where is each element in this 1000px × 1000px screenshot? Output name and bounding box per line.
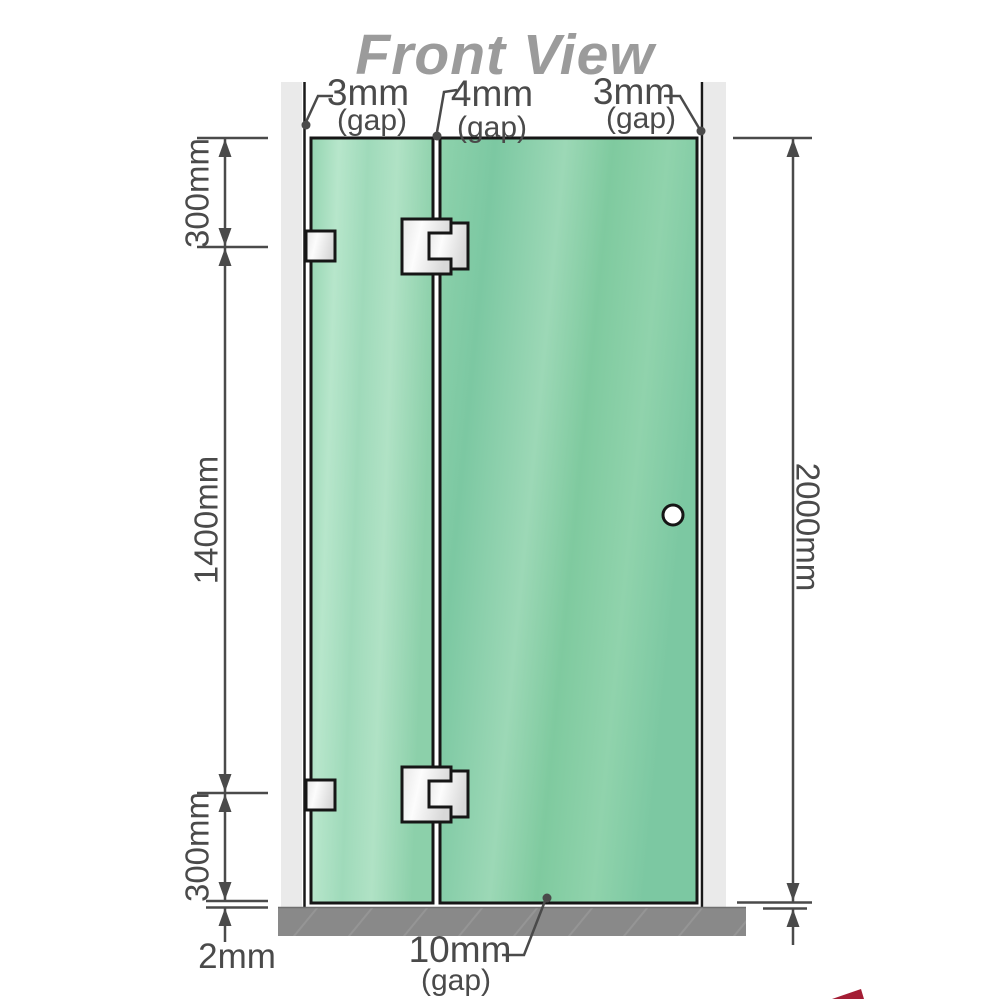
gap-middle-value: 4mm	[451, 73, 533, 114]
gap-callout-right: 3mm (gap)	[593, 71, 706, 136]
dim-2000-label: 2000mm	[790, 463, 827, 591]
gap-callout-left: 3mm (gap)	[302, 72, 410, 137]
leader-dot-bottom-gap	[543, 894, 552, 903]
leader-dot-middle-gap	[433, 132, 442, 141]
front-view-diagram: Front View	[0, 0, 1000, 1000]
dim-2mm-label: 2mm	[198, 937, 276, 976]
right-wall-channel	[704, 82, 726, 907]
gap-middle-label: (gap)	[457, 111, 527, 144]
door-glass-panel	[440, 138, 697, 903]
hinge-bottom	[402, 767, 468, 822]
gap-bottom-label: (gap)	[421, 964, 491, 997]
diagram-canvas: Front View	[0, 0, 1000, 1000]
dim-300-bottom-label: 300mm	[179, 792, 216, 902]
base-slab	[278, 907, 746, 936]
leader-dot-left-gap	[302, 121, 311, 130]
dim-1400-label: 1400mm	[188, 456, 225, 584]
gap-right-label: (gap)	[606, 102, 676, 135]
door-knob	[663, 505, 683, 525]
gap-left-label: (gap)	[337, 104, 407, 137]
shower-base	[278, 902, 762, 941]
left-wall-channel	[281, 82, 302, 907]
wall-bracket-bottom	[306, 780, 335, 810]
leader-dot-right-gap	[697, 127, 706, 136]
watermark-artifact	[832, 989, 864, 999]
wall-bracket-top	[306, 231, 335, 261]
dim-300-top-label: 300mm	[179, 138, 216, 248]
hinge-top	[402, 219, 468, 274]
